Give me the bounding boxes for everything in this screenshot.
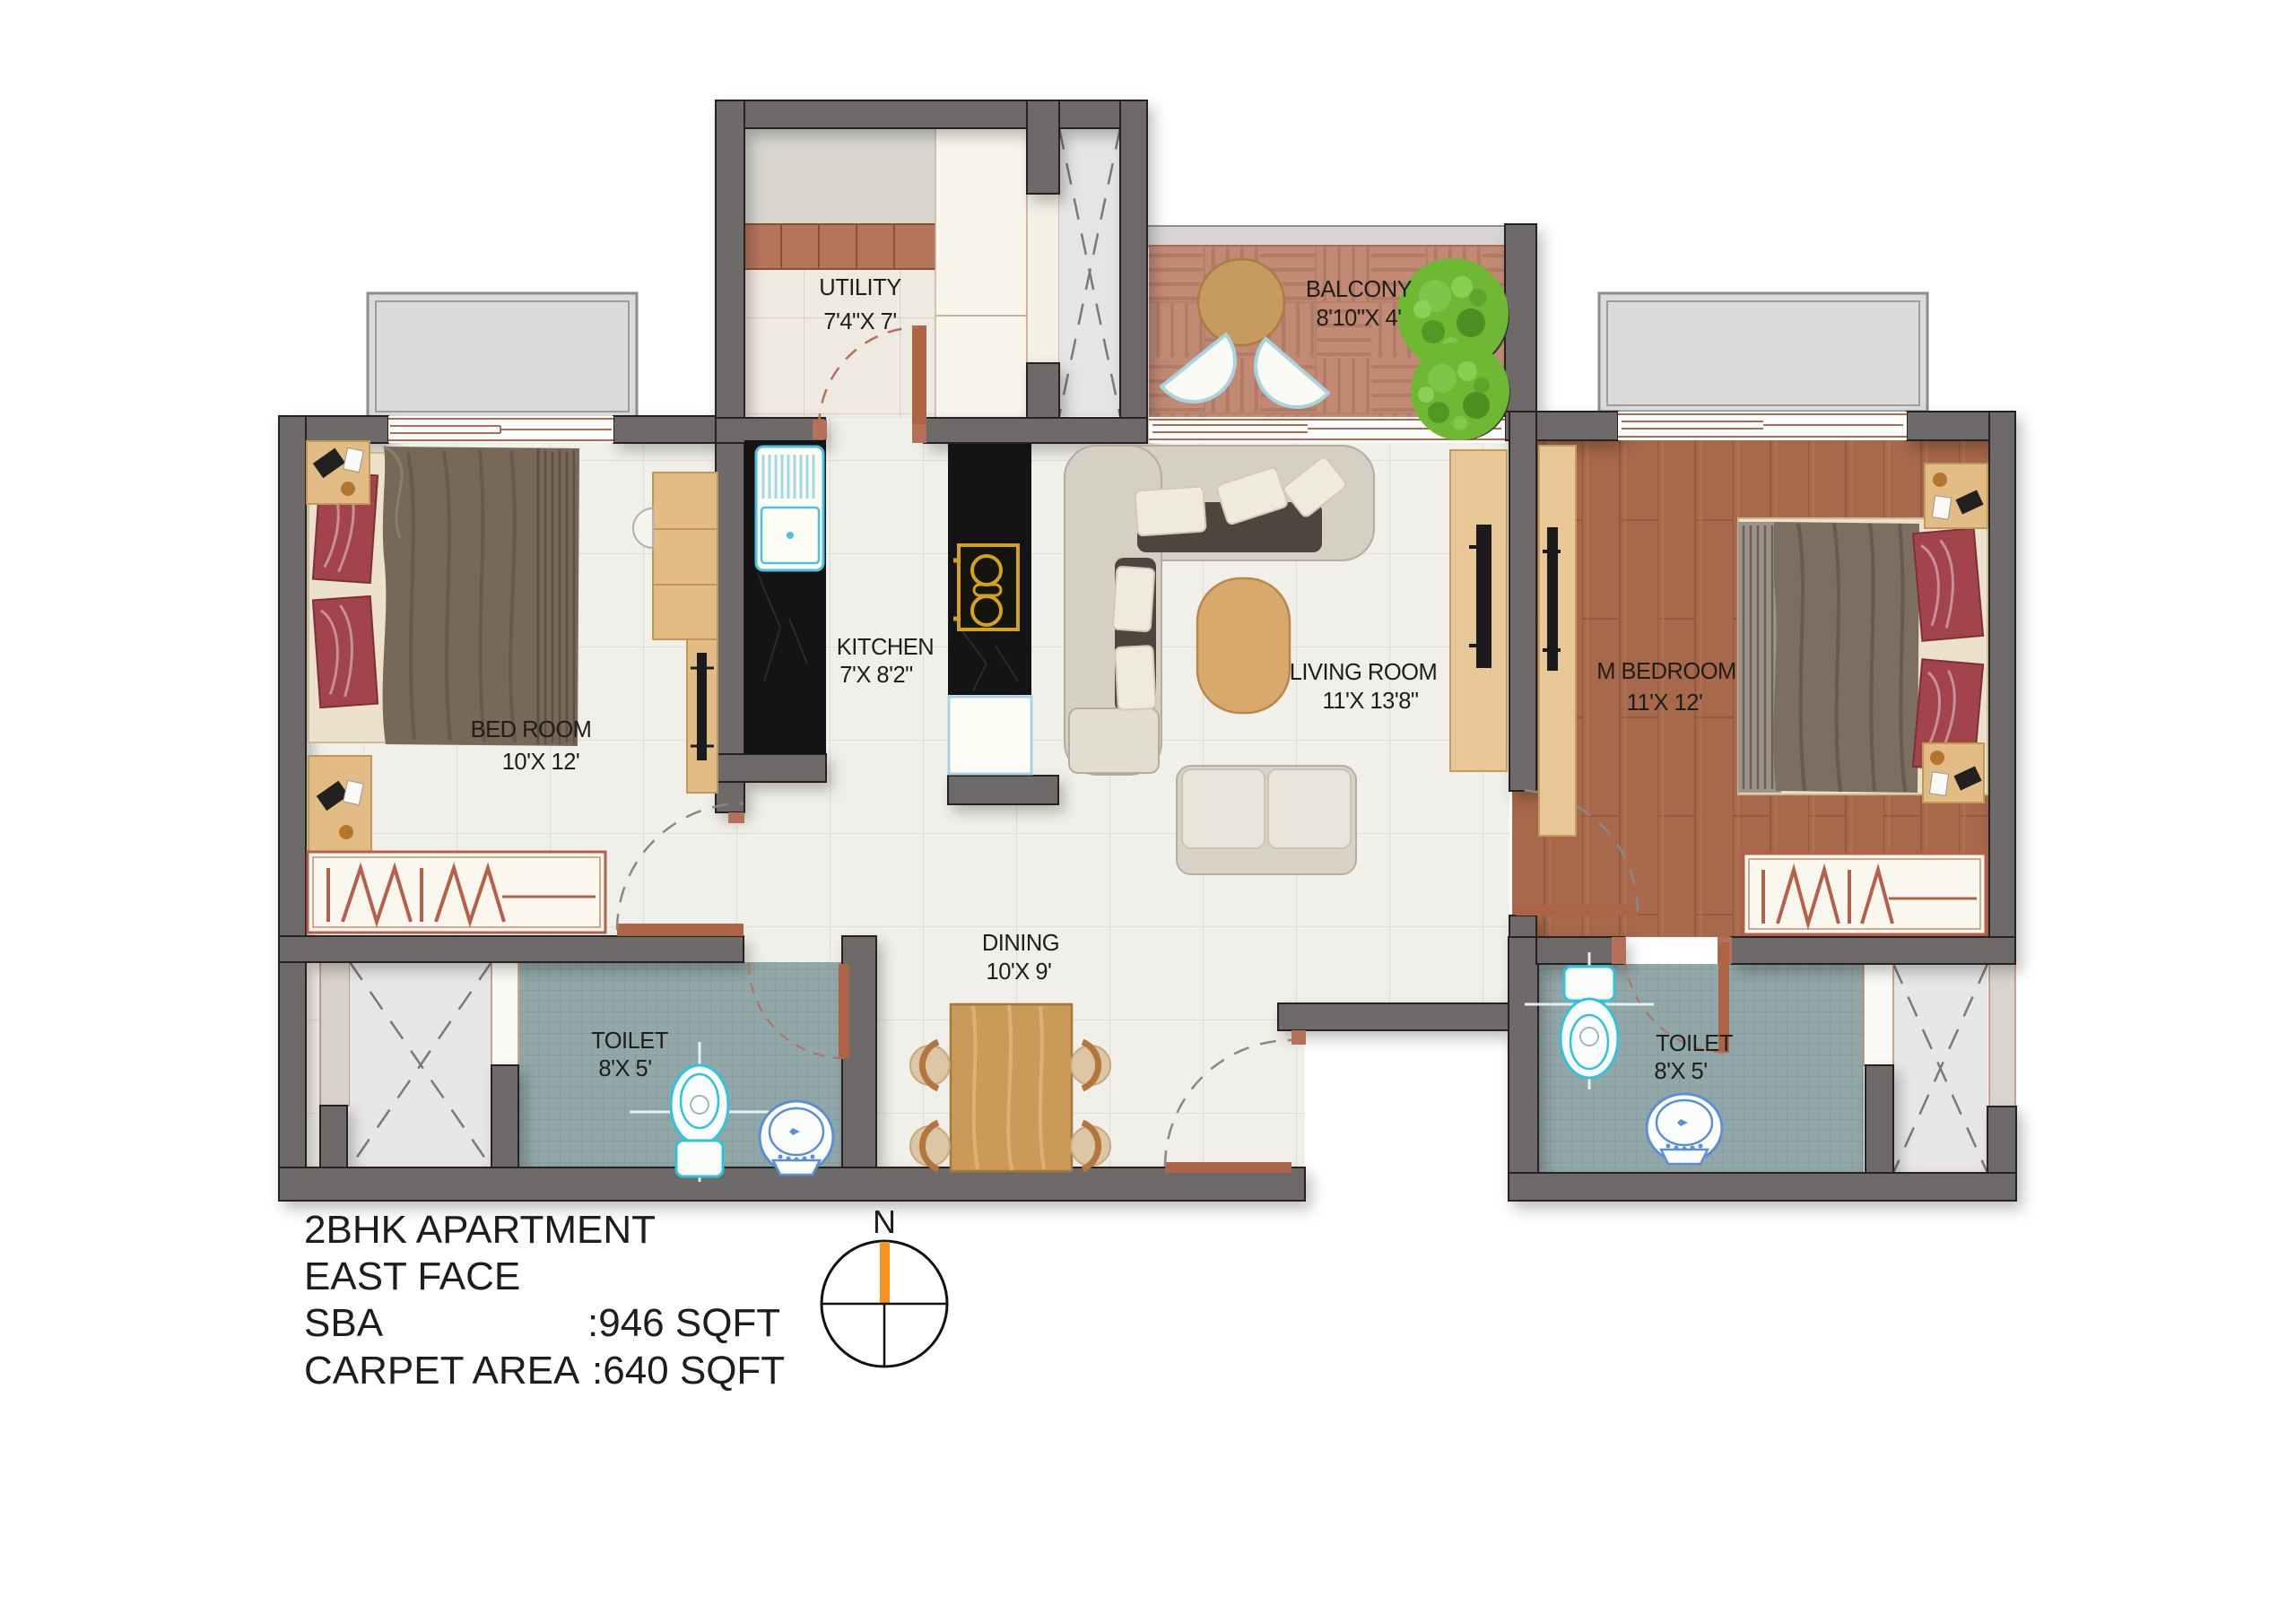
svg-text:11'X 13'8": 11'X 13'8" [1323,689,1419,714]
svg-text:CARPET AREA: CARPET AREA [304,1349,580,1393]
svg-text:2BHK APARTMENT: 2BHK APARTMENT [304,1208,656,1252]
svg-text::946 SQFT: :946 SQFT [587,1301,780,1345]
svg-text:BALCONY: BALCONY [1306,277,1413,302]
svg-text:8'X 5': 8'X 5' [1654,1059,1707,1084]
svg-text:LIVING ROOM: LIVING ROOM [1290,660,1438,685]
svg-text:M BEDROOM: M BEDROOM [1596,659,1736,684]
svg-text::640 SQFT: :640 SQFT [592,1349,785,1393]
svg-text:TOILET: TOILET [591,1028,668,1054]
svg-text:DINING: DINING [982,931,1059,956]
svg-text:7'4"X 7': 7'4"X 7' [823,309,896,334]
svg-text:SBA: SBA [304,1301,384,1345]
svg-text:TOILET: TOILET [1656,1031,1733,1056]
svg-text:N: N [873,1203,896,1240]
svg-text:EAST FACE: EAST FACE [304,1254,520,1298]
svg-text:11'X 12': 11'X 12' [1627,690,1703,716]
svg-text:7'X 8'2": 7'X 8'2" [839,663,912,688]
svg-text:BED ROOM: BED ROOM [471,717,592,742]
svg-text:UTILITY: UTILITY [819,275,901,300]
svg-text:10'X 12': 10'X 12' [502,750,580,775]
svg-text:8'10"X 4': 8'10"X 4' [1316,306,1401,331]
svg-text:10'X 9': 10'X 9' [987,959,1052,985]
svg-text:8'X 5': 8'X 5' [598,1056,651,1081]
svg-text:KITCHEN: KITCHEN [837,635,934,660]
